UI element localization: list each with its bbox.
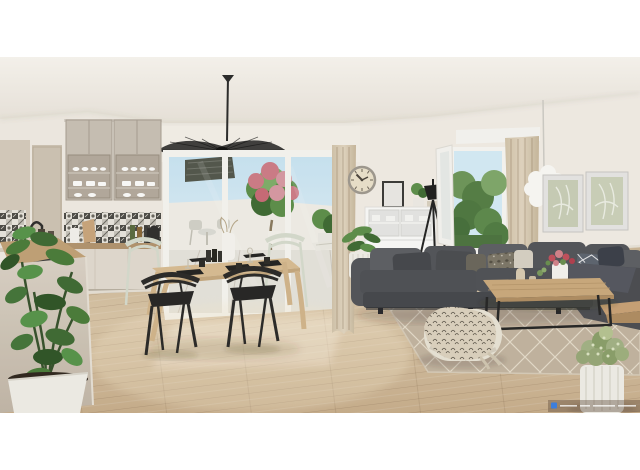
interior-photo <box>0 57 640 413</box>
letterbox-top <box>0 0 640 57</box>
vignette <box>0 57 640 413</box>
interior-scene <box>0 57 640 413</box>
rendering-page <box>0 0 640 470</box>
watermark <box>548 400 640 412</box>
letterbox-bottom <box>0 413 640 470</box>
